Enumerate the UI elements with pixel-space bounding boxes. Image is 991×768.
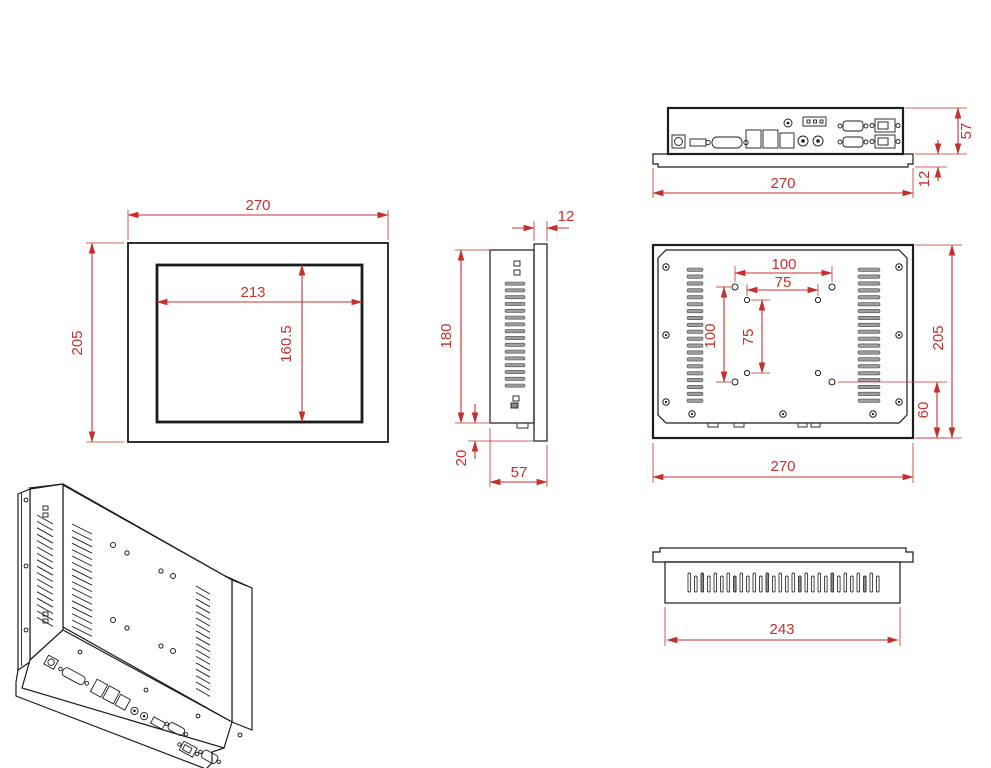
rear-view: 100 75 100 75 60 205 270 <box>653 245 962 483</box>
vent-slot <box>858 365 880 368</box>
vent-slot <box>766 573 769 592</box>
vga-port-icon <box>712 137 742 148</box>
front-view: 270 205 213 160.5 <box>69 197 388 442</box>
screw-icon <box>196 714 200 718</box>
vent-slot <box>505 296 525 299</box>
vent-slot <box>818 573 821 592</box>
usb-stack-icon <box>780 133 794 148</box>
dim-rear-bottom-offset: 60 <box>915 402 932 419</box>
vent-slot <box>753 573 756 592</box>
vent-slot <box>687 378 703 381</box>
screw-center <box>665 266 667 268</box>
vent-slot <box>825 576 828 592</box>
rear-dimensions: 100 75 100 75 60 205 270 <box>653 245 962 483</box>
top-connectors <box>672 117 900 148</box>
vent-slot <box>858 399 880 402</box>
vesa-75-hole <box>815 297 820 302</box>
dim-side-body-height: 180 <box>438 323 455 348</box>
vent-slot <box>858 316 880 319</box>
bottom-flange-outline <box>653 548 913 562</box>
vent-slot <box>714 573 717 592</box>
vent-slot <box>779 573 782 592</box>
screw-center <box>665 401 667 403</box>
vent-slot <box>858 358 880 361</box>
vent-slot <box>858 372 880 375</box>
vent-slot <box>687 275 703 278</box>
vent-slot <box>505 343 525 346</box>
vent-slot <box>721 576 724 592</box>
dim-top-flange: 12 <box>916 171 933 188</box>
vent-slot <box>505 309 525 312</box>
vent-slot <box>864 576 867 592</box>
dimension-drawing-page: 270 57 12 270 205 213 160.5 <box>0 0 991 768</box>
vesa-75-hole <box>815 370 820 375</box>
side-vents <box>505 282 525 387</box>
side-bezel-outline <box>534 244 547 441</box>
screw-icon <box>238 733 242 737</box>
vent-slot <box>505 377 525 380</box>
vent-slot <box>687 351 703 354</box>
lan-port-icon <box>763 130 778 148</box>
vent-slot <box>505 364 525 367</box>
vent-slot <box>687 323 703 326</box>
isometric-view <box>16 484 252 768</box>
vent-slot <box>687 344 703 347</box>
vesa-100-hole <box>829 284 835 290</box>
dim-front-screen-width: 213 <box>240 284 265 301</box>
screw-center <box>872 413 874 415</box>
vent-slot <box>727 573 730 592</box>
vent-slot <box>805 573 808 592</box>
dim-side-depth: 57 <box>511 464 528 481</box>
vent-slot <box>687 330 703 333</box>
dim-side-flange: 12 <box>558 208 575 225</box>
screw-center <box>665 334 667 336</box>
vesa-100-hole <box>171 574 176 579</box>
vesa-75-hole <box>159 569 163 573</box>
vent-slot <box>858 385 880 388</box>
vent-slot <box>858 344 880 347</box>
vent-slot <box>831 573 834 592</box>
vent-slot <box>747 576 750 592</box>
side-hole <box>511 403 518 408</box>
power-jack-icon <box>672 135 685 148</box>
vent-slot <box>687 303 703 306</box>
vesa-75-hole <box>125 551 129 555</box>
vent-slot <box>708 576 711 592</box>
vent-slot <box>505 350 525 353</box>
vent-slot <box>851 576 854 592</box>
vent-slot <box>858 275 880 278</box>
vesa-100-hole <box>111 618 116 623</box>
vent-slot <box>701 573 704 592</box>
dim-rear-vesa75: 75 <box>775 274 792 291</box>
power-jack-pin <box>675 138 683 146</box>
terminal-block-icon <box>803 117 826 126</box>
vent-slot <box>505 302 525 305</box>
screw-icon <box>78 650 82 654</box>
dim-front-screen-height: 160.5 <box>278 325 295 363</box>
vent-slot <box>505 384 525 387</box>
vent-slot <box>877 576 880 592</box>
vesa-75-hole <box>744 370 749 375</box>
dim-side-bottom-offset: 20 <box>453 450 470 467</box>
vent-slot <box>687 282 703 285</box>
screw-icon <box>24 498 28 502</box>
vent-slot <box>687 365 703 368</box>
serial-port-icon <box>200 749 218 765</box>
side-tab <box>517 423 528 428</box>
vent-slot <box>505 323 525 326</box>
vent-slot <box>687 316 703 319</box>
vent-slot <box>687 296 703 299</box>
vesa-100-hole <box>829 379 835 385</box>
vent-slot <box>858 309 880 312</box>
iso-right-bezel-edge <box>232 580 252 730</box>
vesa-100-hole <box>732 379 738 385</box>
vent-slot <box>858 289 880 292</box>
front-dimensions: 270 205 213 160.5 <box>69 197 388 442</box>
screw-icon <box>24 564 28 568</box>
side-view: 12 180 20 57 <box>438 208 574 487</box>
vesa-100-hole <box>111 543 116 548</box>
dim-front-width: 270 <box>245 197 270 214</box>
vent-slot <box>858 268 880 271</box>
top-flange-outline <box>653 154 913 167</box>
usb-port-icon <box>690 139 706 146</box>
vent-slot <box>687 399 703 402</box>
dim-bottom-width: 243 <box>769 621 794 638</box>
vent-slot <box>740 573 743 592</box>
vent-slot <box>505 357 525 360</box>
vga-screw <box>706 140 710 144</box>
vent-slot <box>687 337 703 340</box>
vent-slot <box>786 576 789 592</box>
side-hole <box>513 396 519 401</box>
vent-slot <box>505 289 525 292</box>
lan-port-icon <box>746 130 761 148</box>
vent-slot <box>858 282 880 285</box>
vent-slot <box>858 392 880 395</box>
screw-center <box>782 413 784 415</box>
serial-port-icon <box>843 121 863 131</box>
vent-slot <box>858 337 880 340</box>
vesa-75-hole <box>744 297 749 302</box>
dim-top-width: 270 <box>770 175 795 192</box>
vent-slot <box>858 351 880 354</box>
dim-top-depth: 57 <box>958 123 975 140</box>
vesa-100-hole <box>171 649 176 654</box>
vesa-75-hole <box>159 644 163 648</box>
vent-slot <box>870 573 873 592</box>
vent-slot <box>687 268 703 271</box>
screw-icon <box>24 628 28 632</box>
screw-center <box>898 401 900 403</box>
vent-slot <box>695 576 698 592</box>
screw-center <box>691 413 693 415</box>
vent-slot <box>857 573 860 592</box>
dim-rear-height: 205 <box>930 325 947 350</box>
serial-port-icon <box>843 137 863 147</box>
vent-slot <box>838 576 841 592</box>
vent-slot <box>687 385 703 388</box>
screw-icon <box>144 688 148 692</box>
vesa-75-hole <box>125 626 129 630</box>
screw-center <box>898 266 900 268</box>
vent-slot <box>792 573 795 592</box>
vent-slot <box>812 576 815 592</box>
vent-slot <box>505 336 525 339</box>
top-io-view: 270 57 12 <box>653 108 975 198</box>
vent-slot <box>734 576 737 592</box>
iso-bezel-side <box>18 489 30 670</box>
vent-slot <box>688 573 691 592</box>
vent-slot <box>844 573 847 592</box>
bottom-dimensions: 243 <box>665 607 900 646</box>
side-hole <box>514 270 520 275</box>
vent-slot <box>760 576 763 592</box>
dim-rear-vesa100: 100 <box>771 256 796 273</box>
dvi-port-icon <box>179 741 197 757</box>
bottom-vents <box>688 573 879 592</box>
vent-slot <box>505 330 525 333</box>
vent-slot <box>858 323 880 326</box>
vent-slot <box>858 378 880 381</box>
top-body-outline <box>668 108 903 154</box>
vent-slot <box>687 289 703 292</box>
rear-vent-left <box>687 268 703 403</box>
dimension-drawing: 270 57 12 270 205 213 160.5 <box>0 0 991 768</box>
dim-rear-width: 270 <box>770 458 795 475</box>
dim-front-height: 205 <box>69 330 86 355</box>
vent-slot <box>773 576 776 592</box>
vent-slot <box>505 316 525 319</box>
vent-slot <box>687 392 703 395</box>
dim-rear-vesa100-v: 100 <box>702 323 719 348</box>
vent-slot <box>505 370 525 373</box>
front-bezel-outline <box>128 243 388 442</box>
vent-slot <box>858 330 880 333</box>
vent-slot <box>858 296 880 299</box>
dim-rear-vesa75-v: 75 <box>740 329 757 346</box>
vent-slot <box>799 576 802 592</box>
vent-slot <box>687 372 703 375</box>
bottom-view: 243 <box>653 548 913 646</box>
vesa-100-hole <box>732 284 738 290</box>
vent-slot <box>687 309 703 312</box>
vent-slot <box>505 282 525 285</box>
vent-slot <box>687 358 703 361</box>
side-hole <box>514 261 520 266</box>
screw-center <box>898 334 900 336</box>
vent-slot <box>858 303 880 306</box>
